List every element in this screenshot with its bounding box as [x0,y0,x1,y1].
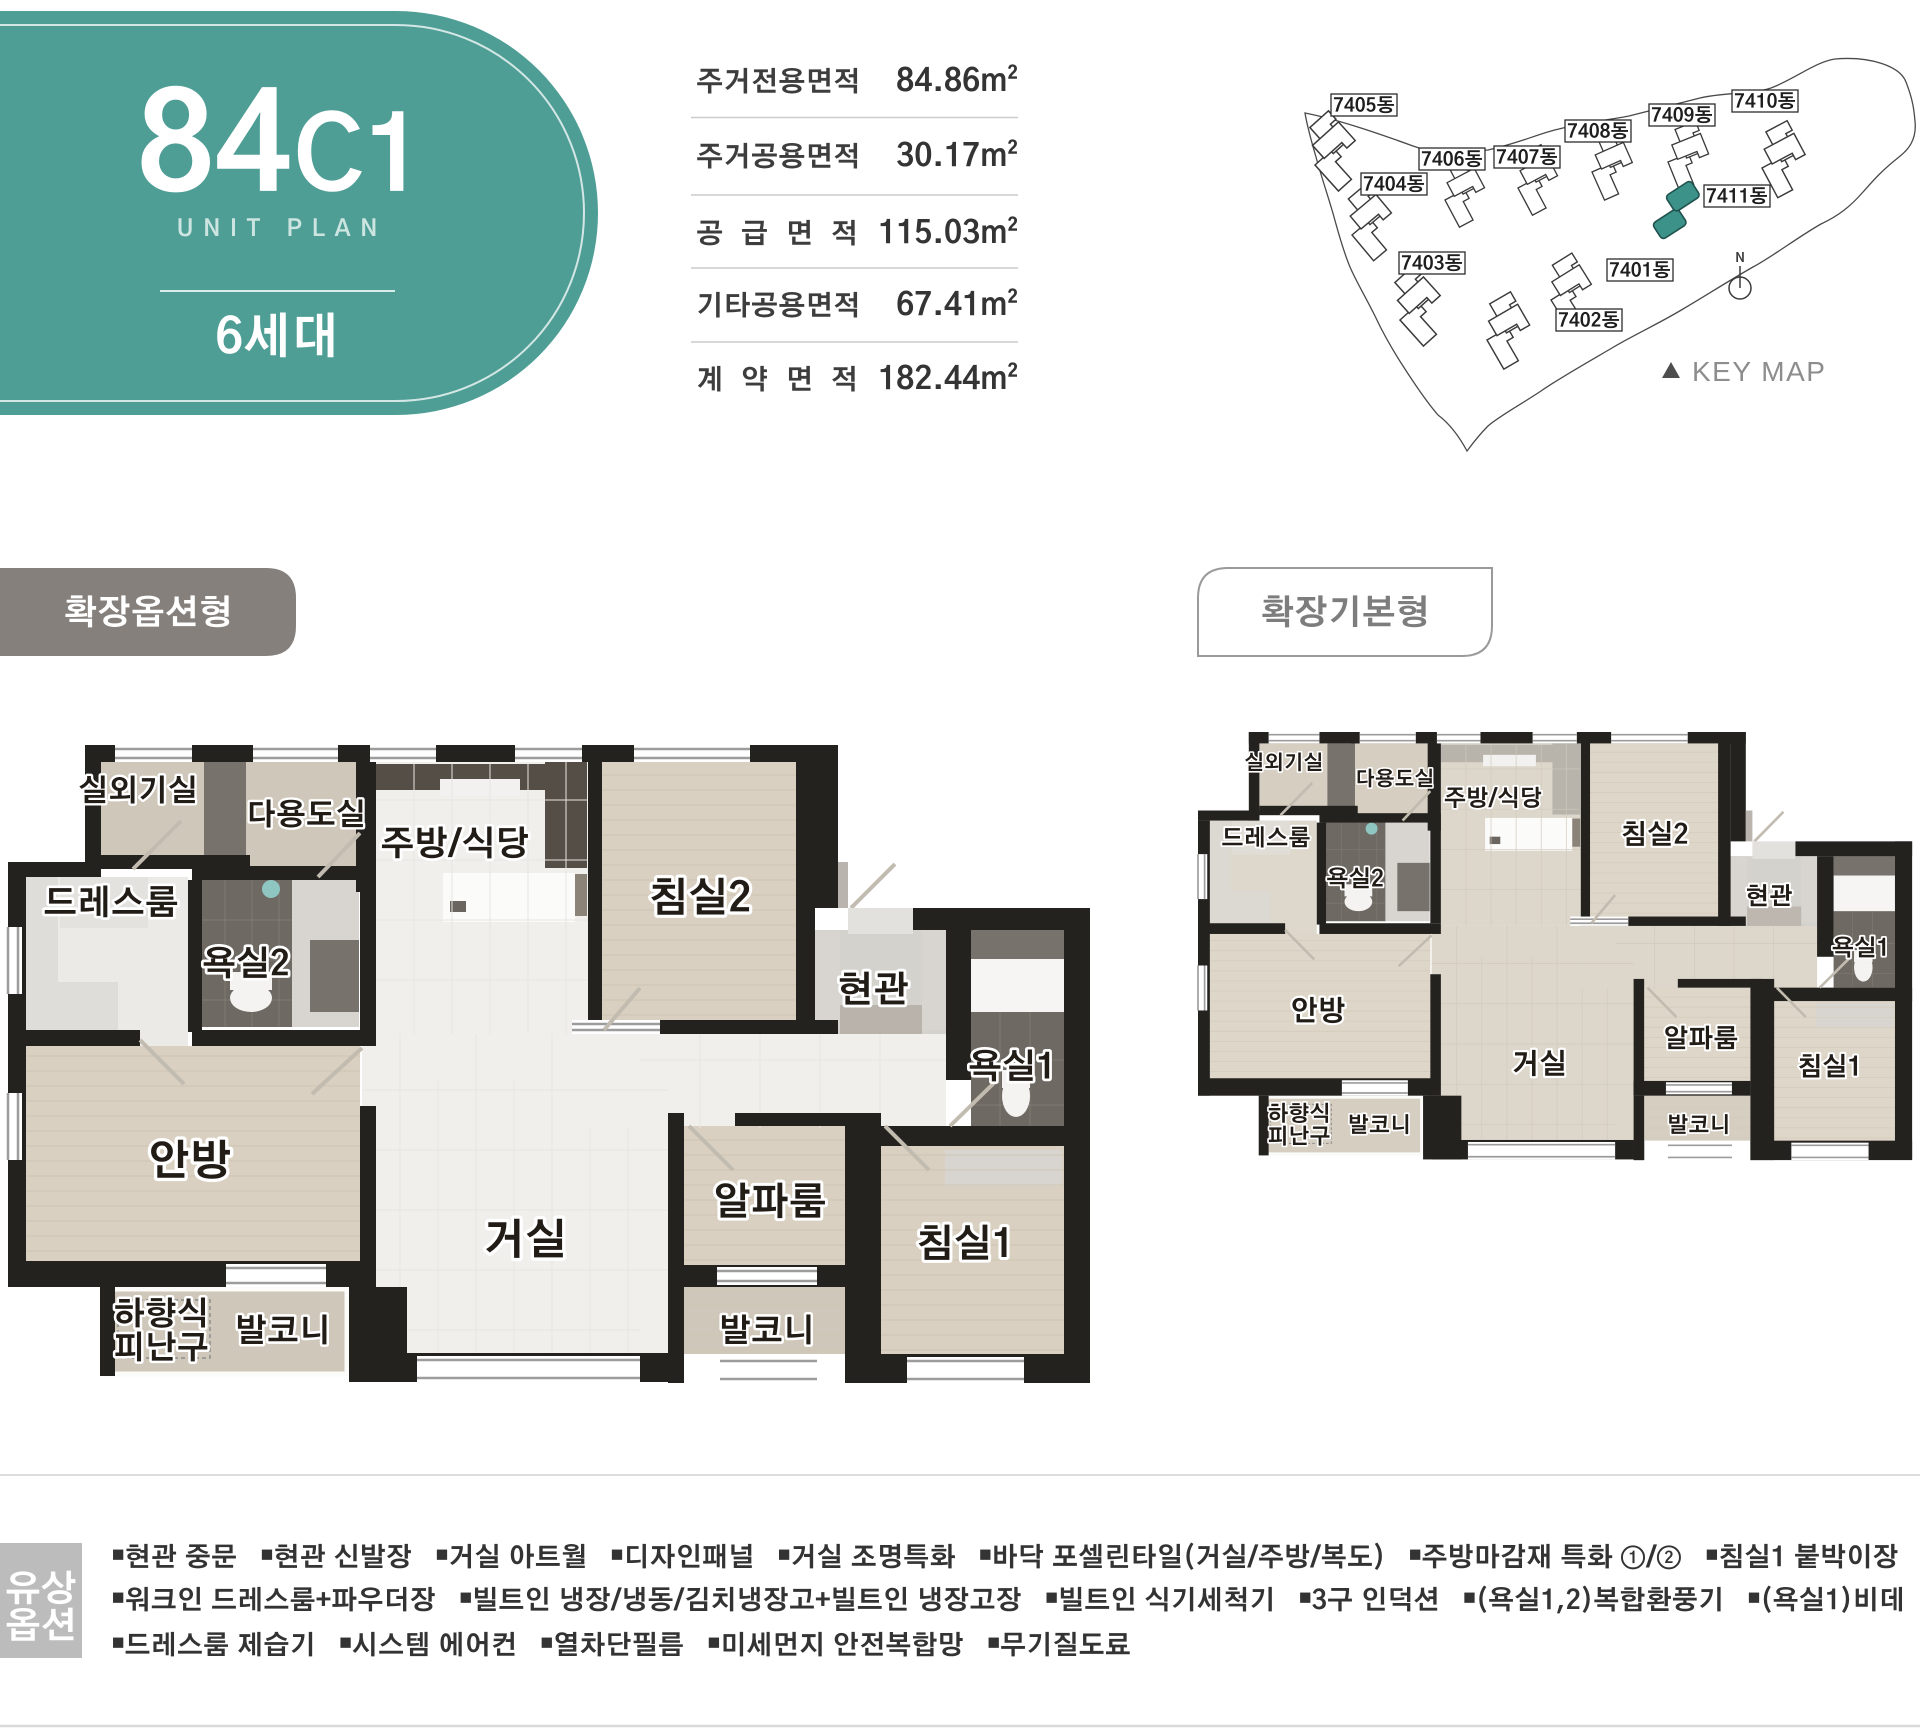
svg-text:KEY MAP: KEY MAP [1692,356,1826,387]
